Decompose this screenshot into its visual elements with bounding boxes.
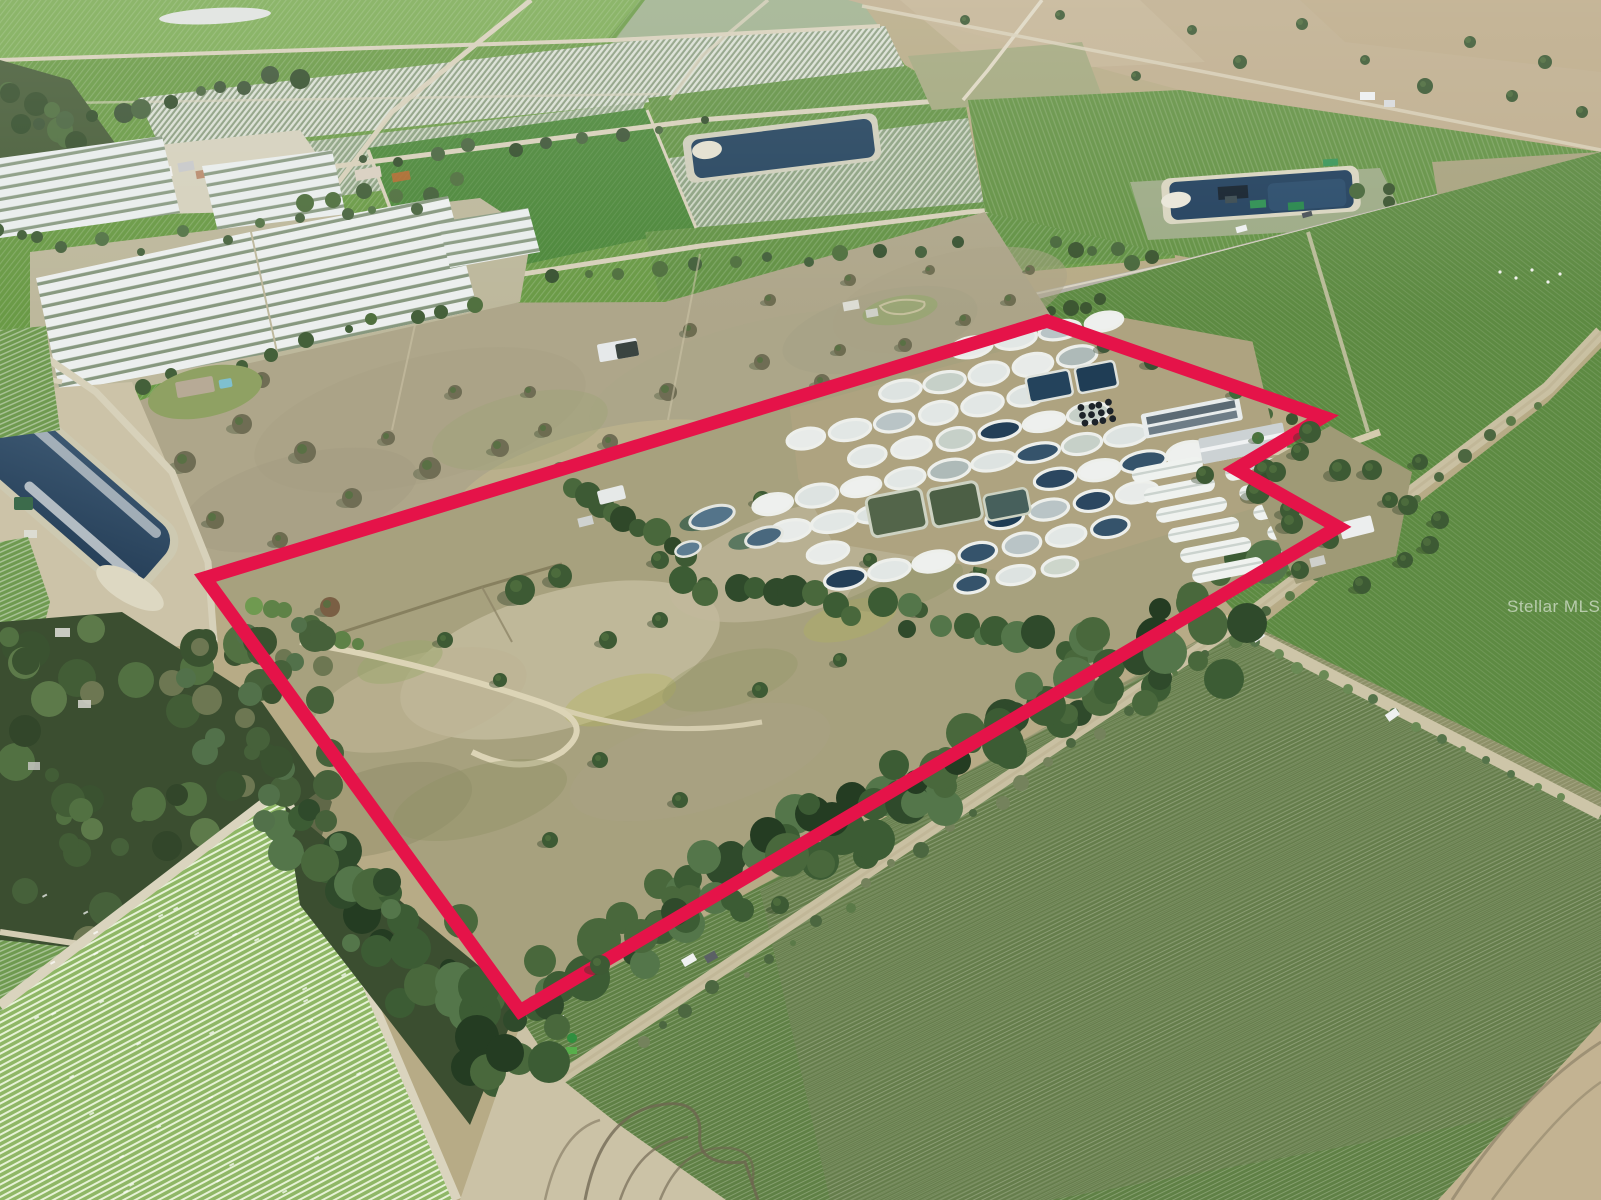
svg-text:Stellar MLS: Stellar MLS: [1507, 597, 1600, 616]
